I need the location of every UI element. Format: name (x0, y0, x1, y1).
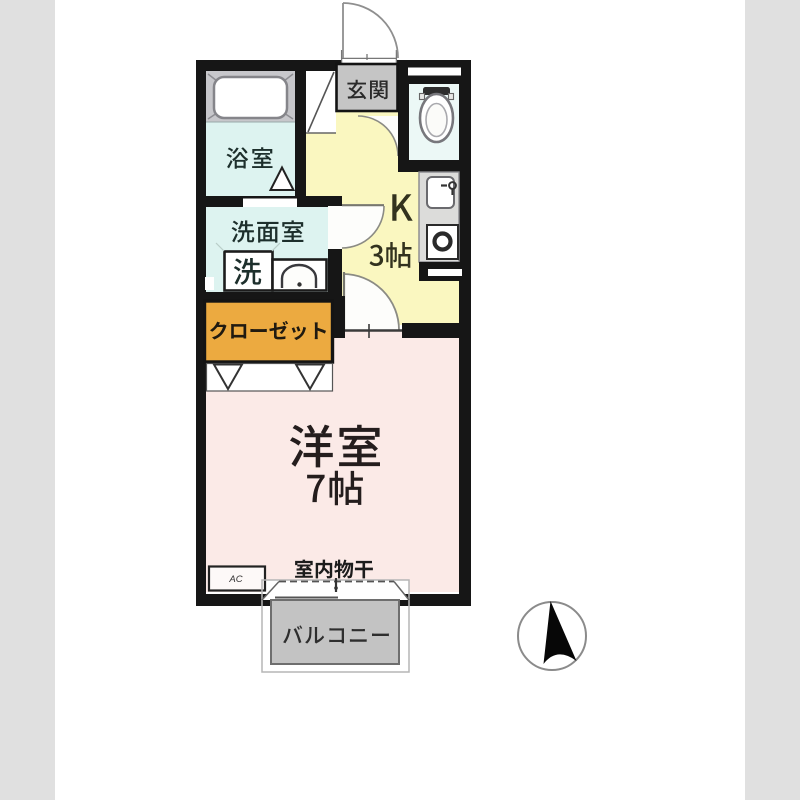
svg-text:AC: AC (228, 574, 242, 585)
